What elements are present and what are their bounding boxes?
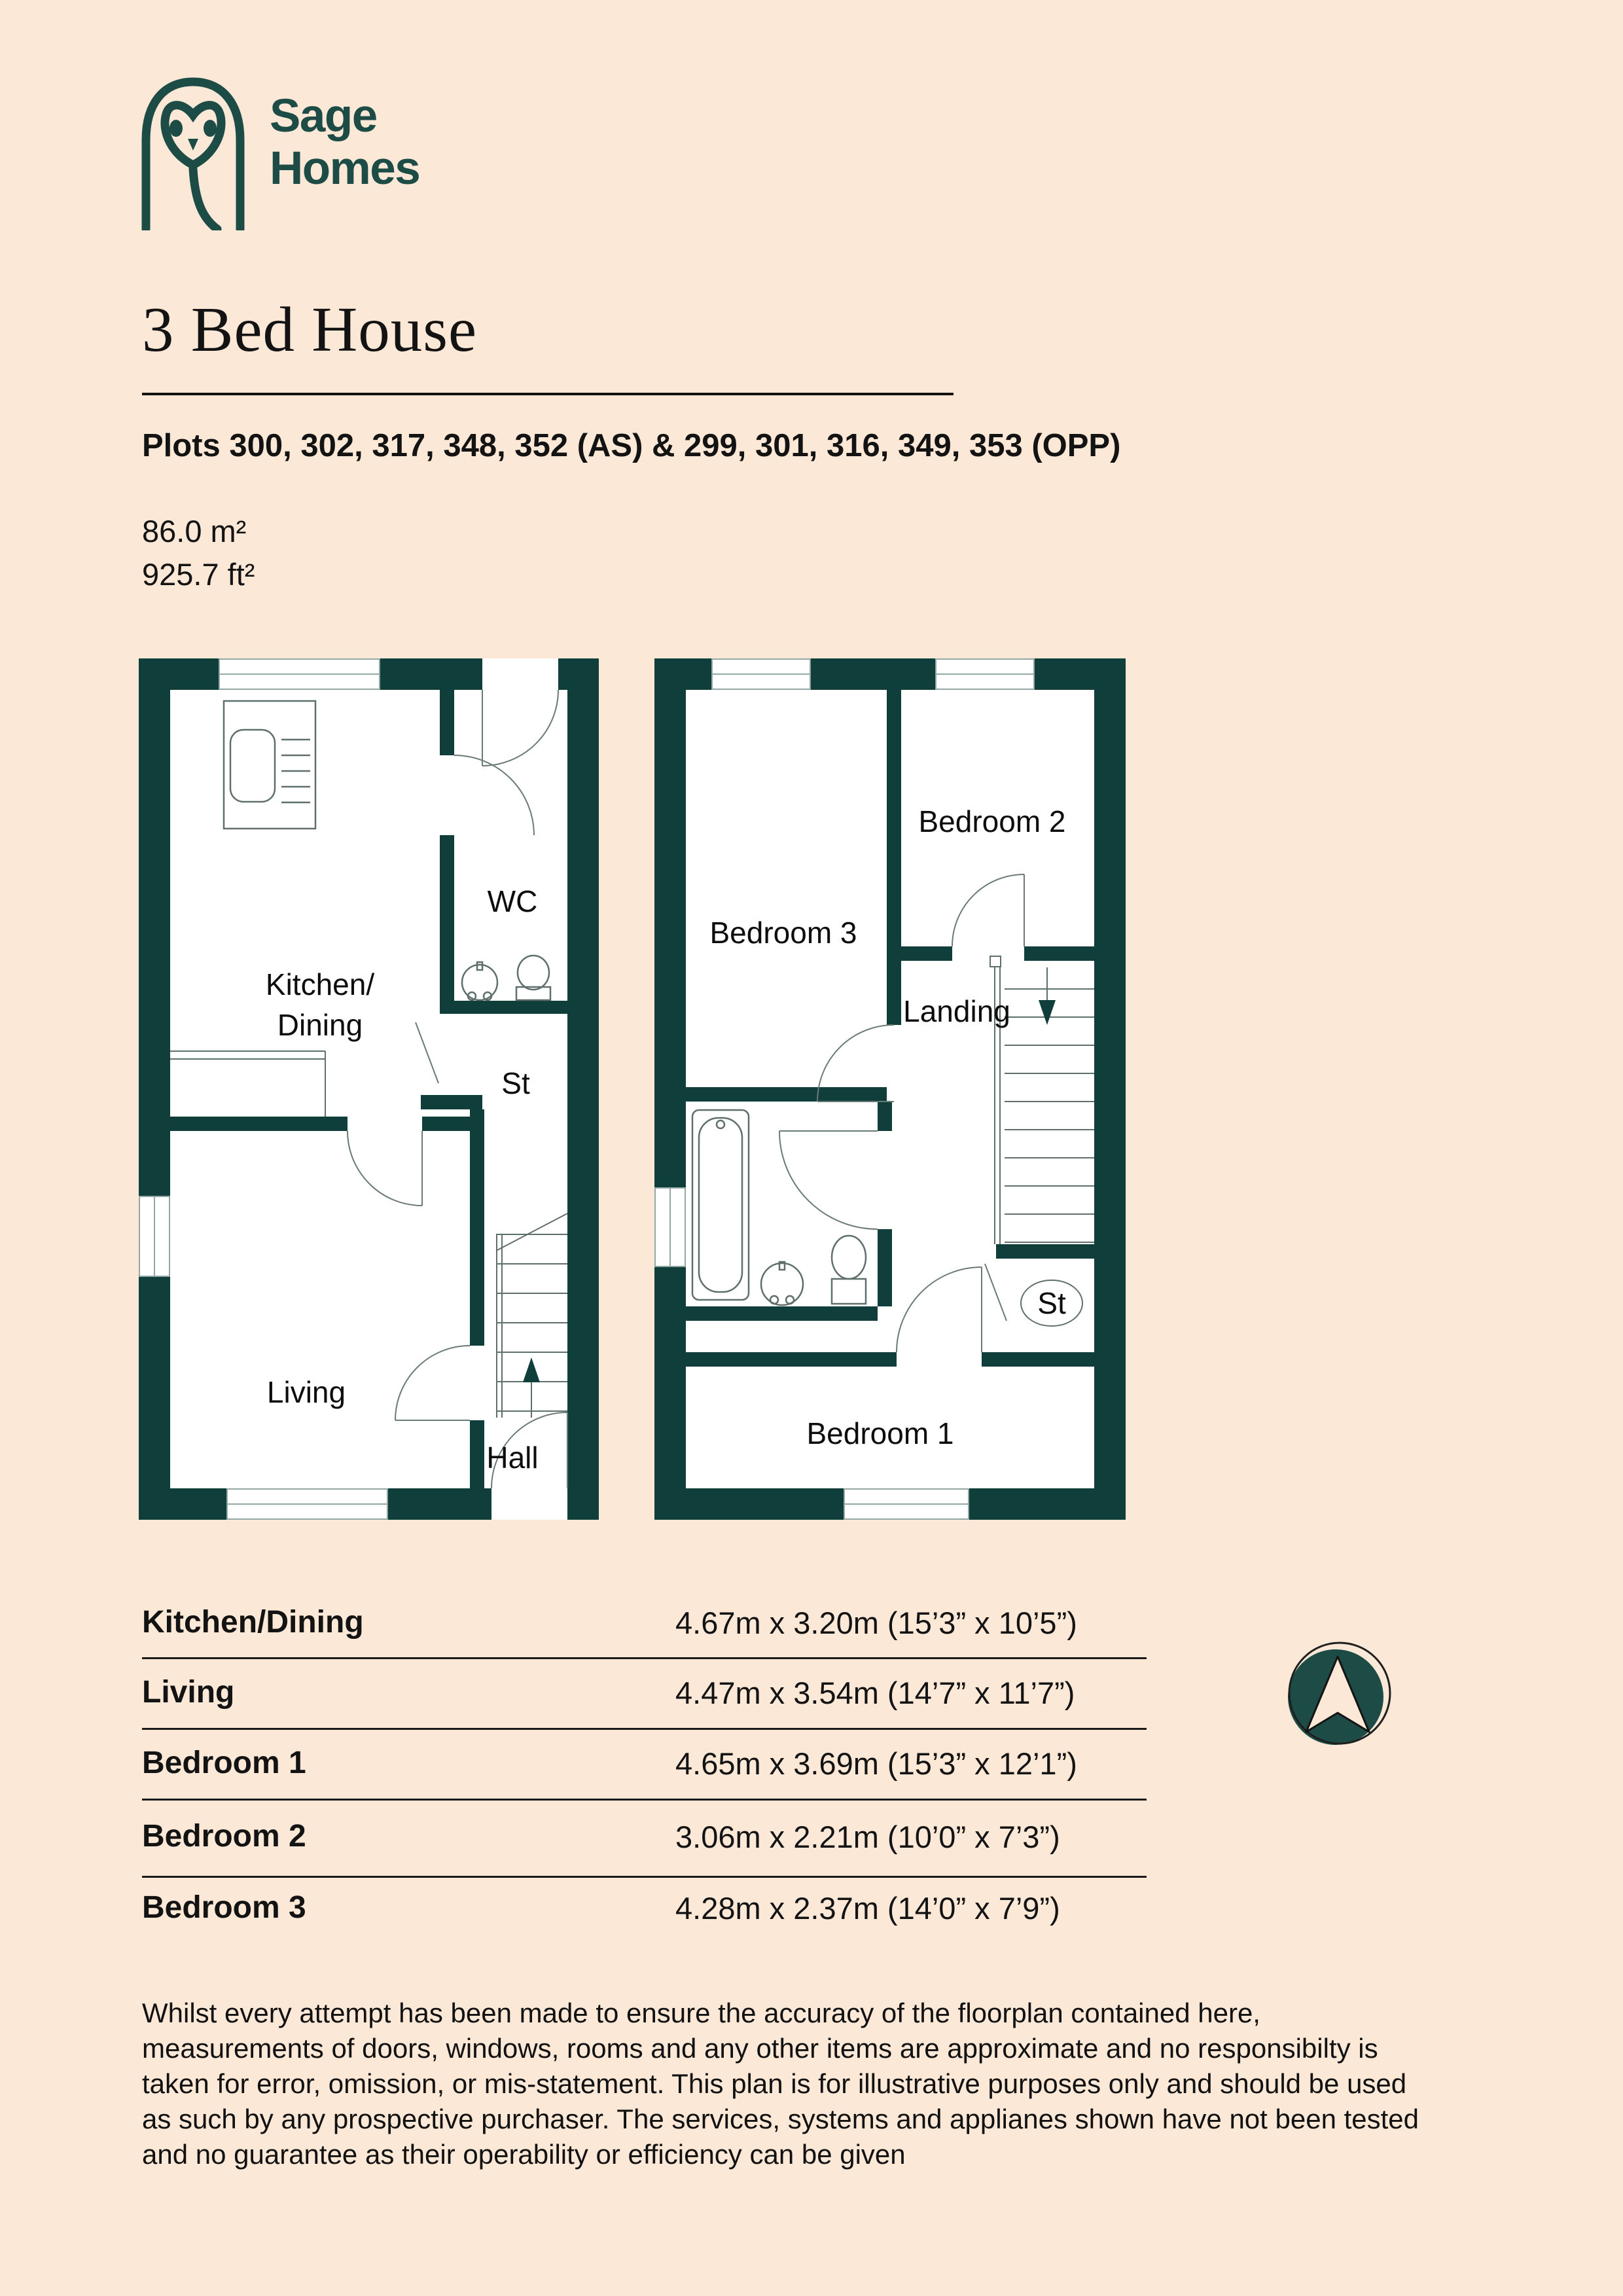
title-underline: [142, 393, 954, 395]
table-divider: [142, 1728, 1147, 1730]
first-floor-plan: [654, 658, 1126, 1520]
table-divider: [142, 1657, 1147, 1659]
room-label-bedroom2: Bedroom 2: [918, 801, 1065, 842]
plots-line: Plots 300, 302, 317, 348, 352 (AS) & 299…: [142, 427, 1120, 464]
table-row-room: Bedroom 1: [142, 1745, 306, 1781]
table-row-size: 4.65m x 3.69m (15’3” x 12’1”): [675, 1746, 1077, 1782]
floor-areas: 86.0 m² 925.7 ft²: [142, 510, 255, 596]
room-label-bedroom1: Bedroom 1: [806, 1413, 954, 1454]
floorplan-sheet: Sage Homes 3 Bed House Plots 300, 302, 3…: [0, 0, 1623, 2296]
table-row-room: Bedroom 3: [142, 1890, 306, 1926]
table-divider: [142, 1876, 1147, 1878]
room-label-kitchen-dining: Kitchen/ Dining: [266, 964, 374, 1045]
front-door-opening: [482, 658, 558, 690]
room-label-wc: WC: [488, 881, 538, 922]
room-label-store-ground: St: [501, 1063, 529, 1103]
table-row-size: 4.67m x 3.20m (15’3” x 10’5”): [675, 1605, 1077, 1641]
brand-name-line2: Homes: [270, 143, 419, 195]
table-row-room: Bedroom 2: [142, 1818, 306, 1854]
room-label-hall: Hall: [486, 1437, 538, 1478]
table-divider: [142, 1799, 1147, 1801]
owl-logo-icon: [137, 73, 249, 230]
rear-door-opening: [491, 1488, 567, 1520]
north-arrow-icon: [1282, 1640, 1397, 1752]
room-label-landing: Landing: [903, 991, 1010, 1031]
table-row-room: Living: [142, 1674, 234, 1710]
table-row-size: 3.06m x 2.21m (10’0” x 7’3”): [675, 1819, 1060, 1855]
table-row-size: 4.47m x 3.54m (14’7” x 11’7”): [675, 1675, 1075, 1711]
room-label-store-first: St: [1037, 1283, 1065, 1323]
disclaimer-text: Whilst every attempt has been made to en…: [142, 1996, 1523, 2172]
room-label-bedroom3: Bedroom 3: [709, 912, 857, 953]
table-row-size: 4.28m x 2.37m (14’0” x 7’9”): [675, 1890, 1060, 1926]
table-row-room: Kitchen/Dining: [142, 1604, 364, 1640]
brand-wordmark: Sage Homes: [270, 90, 419, 195]
page-title: 3 Bed House: [142, 293, 477, 366]
brand-name-line1: Sage: [270, 90, 419, 143]
room-label-living: Living: [267, 1372, 346, 1412]
